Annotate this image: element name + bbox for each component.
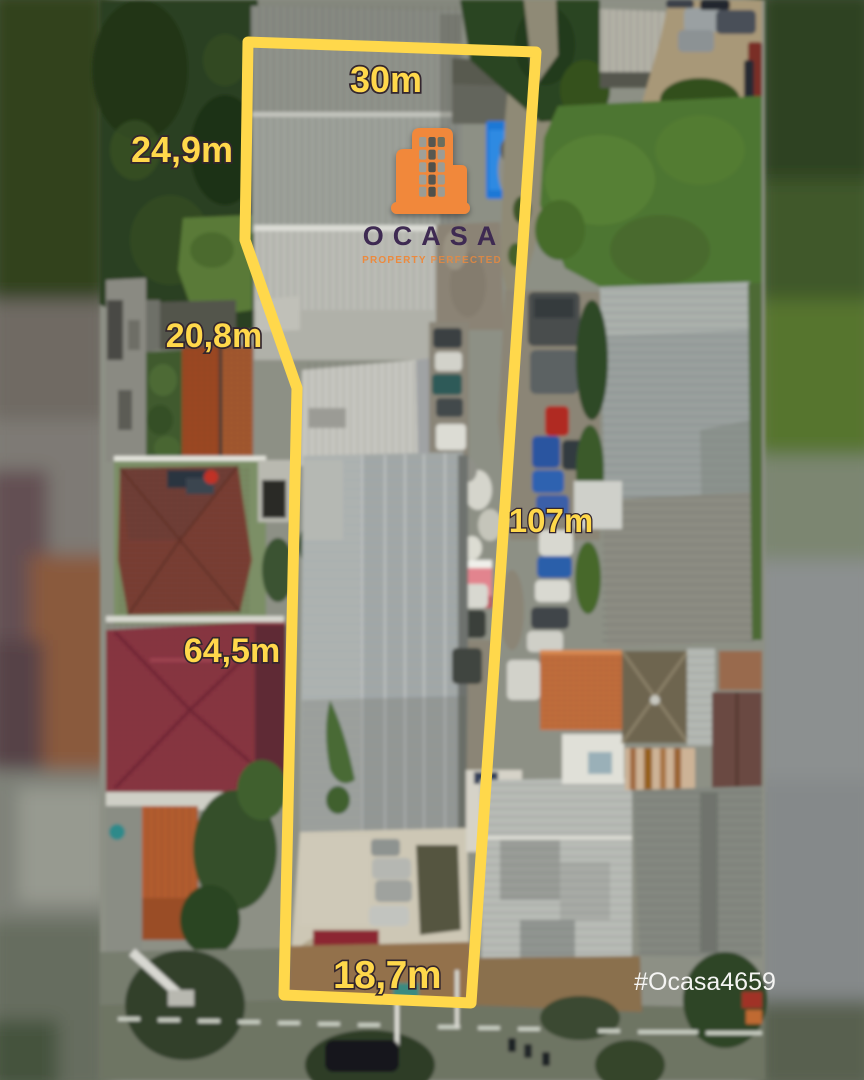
svg-text:18,7m: 18,7m xyxy=(333,954,441,997)
svg-text:#Ocasa4659: #Ocasa4659 xyxy=(634,968,776,996)
svg-text:107m: 107m xyxy=(509,502,593,539)
svg-text:30m: 30m xyxy=(350,59,422,100)
svg-text:PROPERTY PERFECTED: PROPERTY PERFECTED xyxy=(362,255,502,266)
svg-text:20,8m: 20,8m xyxy=(166,317,262,355)
svg-text:OCASA: OCASA xyxy=(363,221,506,251)
svg-text:24,9m: 24,9m xyxy=(131,129,233,170)
svg-text:64,5m: 64,5m xyxy=(184,632,280,670)
